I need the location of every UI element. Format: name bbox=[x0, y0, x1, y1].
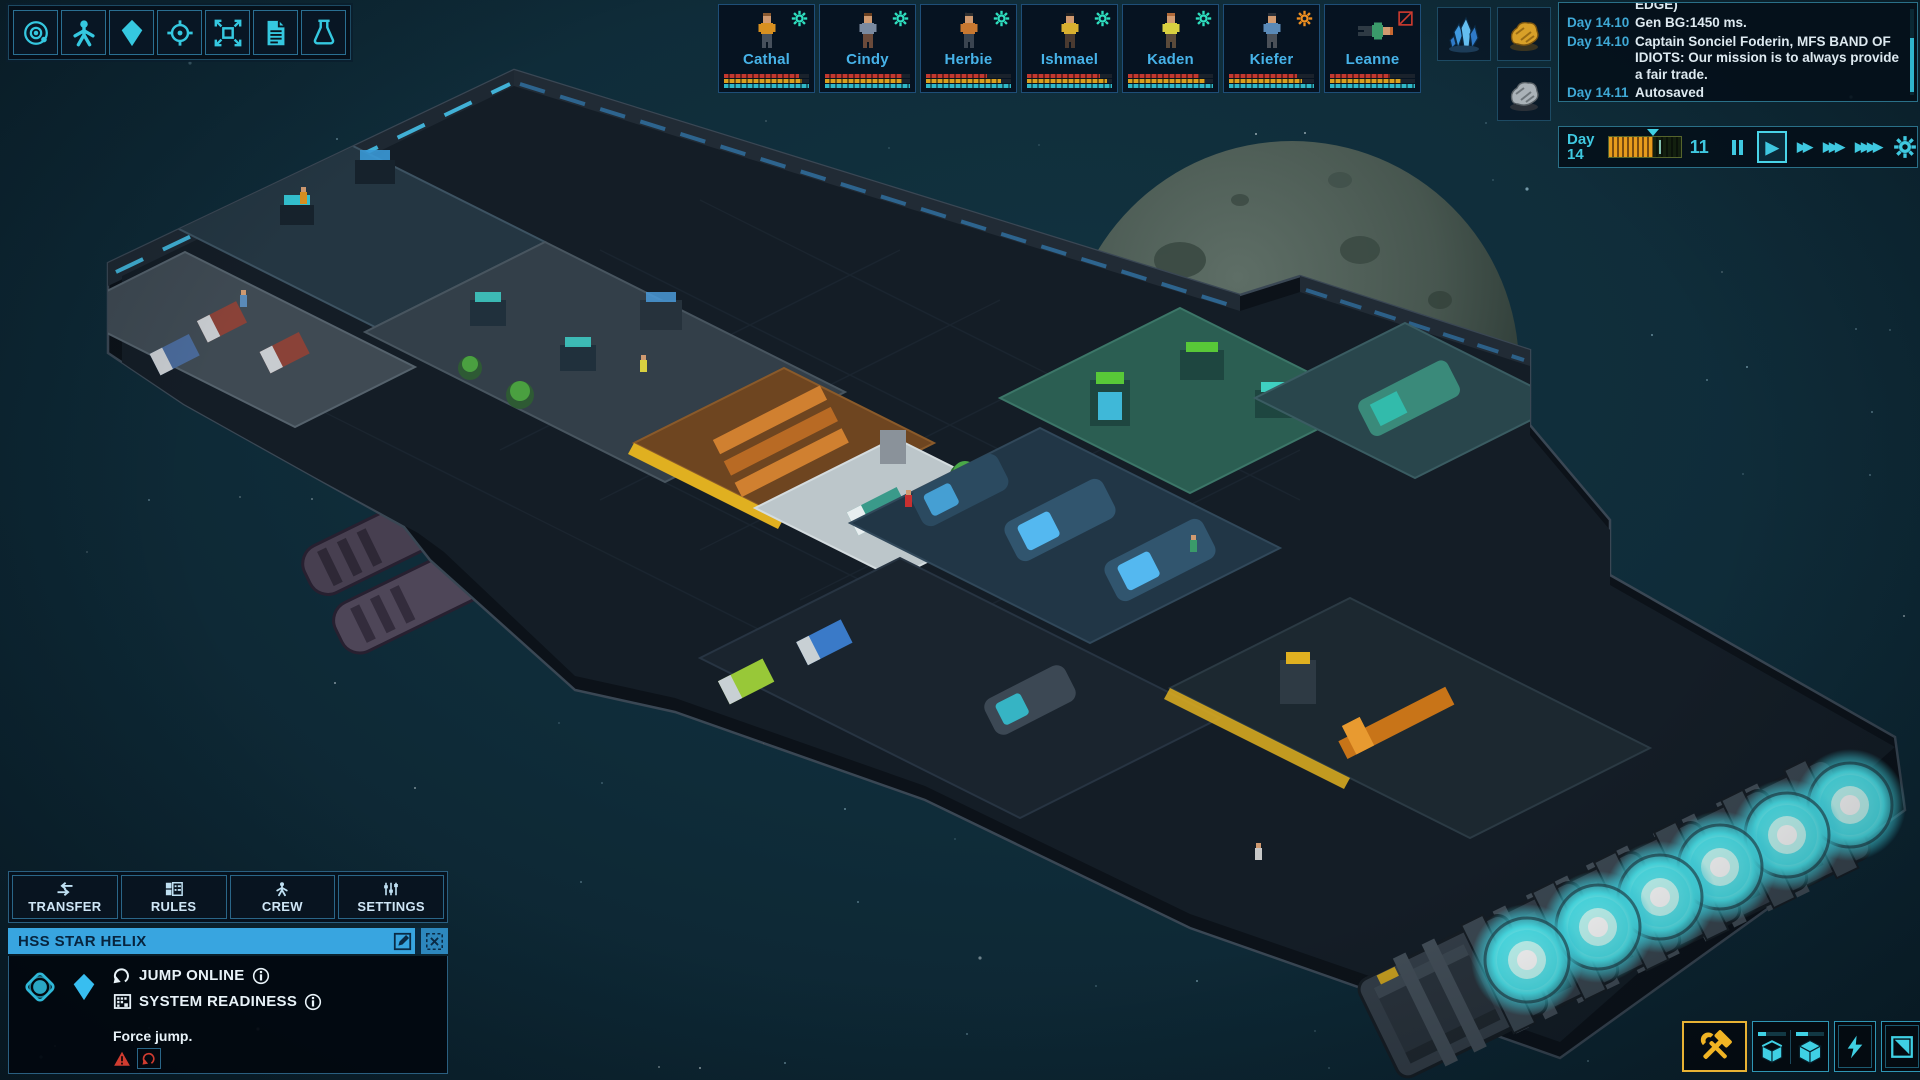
crew-name: Cathal bbox=[719, 51, 814, 68]
system-readiness-row[interactable]: SYSTEM READINESS bbox=[113, 992, 322, 1011]
event-log-entry: Day 14.10Gen BG:1450 ms. bbox=[1567, 15, 1903, 31]
crew-card-cathal[interactable]: Cathal bbox=[718, 4, 815, 93]
reports-icon bbox=[261, 18, 291, 48]
resource-empty-slot bbox=[1437, 67, 1491, 121]
ship-tab-label: TRANSFER bbox=[28, 899, 101, 914]
ship-tab-transfer[interactable]: TRANSFER bbox=[12, 875, 118, 919]
time-settings-button[interactable] bbox=[1893, 135, 1917, 159]
crew-card-leanne[interactable]: Leanne bbox=[1324, 4, 1421, 93]
reports-button[interactable] bbox=[253, 10, 298, 55]
jump-online-label: JUMP ONLINE bbox=[139, 967, 245, 984]
main-toolbar bbox=[8, 5, 351, 60]
hammer-wrench-icon bbox=[1696, 1028, 1734, 1066]
ship-icon bbox=[117, 18, 147, 48]
event-log-scroll-thumb[interactable] bbox=[1910, 38, 1914, 91]
game-stage: Cathal Cindy Herbie Ishmael Kaden bbox=[0, 0, 1920, 1080]
info-icon[interactable] bbox=[252, 967, 270, 985]
ship-title-bar: HSS STAR HELIX bbox=[8, 928, 448, 954]
pencil-icon bbox=[393, 932, 412, 951]
expand-view-button[interactable] bbox=[205, 10, 250, 55]
ship-name: HSS STAR HELIX bbox=[8, 933, 389, 950]
ship-kite-icon bbox=[69, 970, 99, 1004]
crew-portrait-sprite bbox=[1350, 11, 1396, 51]
gear-icon bbox=[1893, 135, 1917, 159]
dashed-x-icon bbox=[425, 932, 444, 951]
gold-ore-resource-slot[interactable] bbox=[1497, 7, 1551, 61]
system-view-icon bbox=[21, 18, 51, 48]
storage-open-box-button[interactable] bbox=[1753, 1030, 1790, 1064]
crew-card-ishmael[interactable]: Ishmael bbox=[1021, 4, 1118, 93]
event-log-entry: Day 14.10Captain Sonciel Foderin, MFS BA… bbox=[1567, 34, 1903, 83]
crew-status-bars bbox=[1229, 73, 1314, 88]
speed-3x-button[interactable]: ▶▶▶ bbox=[1823, 139, 1845, 155]
crew-status-bars bbox=[1330, 73, 1415, 88]
jump-arrow-icon bbox=[113, 966, 132, 985]
ship-tab-rules[interactable]: RULES bbox=[121, 875, 227, 919]
storage-fill-bar bbox=[1758, 1032, 1786, 1036]
rock-ore-resource-slot[interactable] bbox=[1497, 67, 1551, 121]
event-log-entry: EDGE) bbox=[1567, 2, 1903, 13]
force-jump-label: Force jump. bbox=[113, 1028, 192, 1044]
hour-number: 11 bbox=[1690, 137, 1716, 158]
open-box-icon bbox=[1759, 1038, 1785, 1064]
deselect-ship-button[interactable] bbox=[421, 928, 448, 954]
crew-card-kaden[interactable]: Kaden bbox=[1122, 4, 1219, 93]
crew-card-cindy[interactable]: Cindy bbox=[819, 4, 916, 93]
crew-card-herbie[interactable]: Herbie bbox=[920, 4, 1017, 93]
crew-status-bars bbox=[1027, 73, 1112, 88]
crew-portrait-sprite bbox=[744, 11, 790, 51]
crew-button[interactable] bbox=[61, 10, 106, 55]
crew-gear-icon[interactable] bbox=[993, 10, 1010, 27]
speed-4x-button[interactable]: ▶▶▶▶ bbox=[1855, 139, 1883, 155]
resource-grid bbox=[1437, 7, 1551, 121]
crew-name: Kaden bbox=[1123, 51, 1218, 68]
play-button[interactable]: ▶ bbox=[1757, 131, 1787, 163]
cube-icon bbox=[1797, 1038, 1823, 1064]
crystal-resource-icon bbox=[1444, 14, 1484, 54]
build-tools-button[interactable] bbox=[1682, 1021, 1747, 1072]
system-view-button[interactable] bbox=[13, 10, 58, 55]
event-log-text: Autosaved bbox=[1635, 85, 1903, 101]
target-button[interactable] bbox=[157, 10, 202, 55]
crew-status-bars bbox=[926, 73, 1011, 88]
day-indicator: Day 14 bbox=[1567, 132, 1600, 162]
ship-tab-settings[interactable]: SETTINGS bbox=[338, 875, 444, 919]
crew-name: Cindy bbox=[820, 51, 915, 68]
event-log-text: Gen BG:1450 ms. bbox=[1635, 15, 1903, 31]
lightning-icon bbox=[1842, 1034, 1868, 1060]
settings-icon bbox=[381, 881, 401, 897]
ship-panel-body: JUMP ONLINE SYSTEM READINESS Force jump. bbox=[8, 956, 448, 1074]
ship-button[interactable] bbox=[109, 10, 154, 55]
ship-select-diamond-icon bbox=[21, 968, 59, 1006]
ship-panel-tabs: TRANSFERRULESCREWSETTINGS bbox=[8, 871, 448, 923]
speed-2x-button[interactable]: ▶▶ bbox=[1797, 139, 1813, 155]
research-icon bbox=[309, 18, 339, 48]
ship-tab-label: SETTINGS bbox=[357, 899, 424, 914]
crew-gear-icon[interactable] bbox=[791, 10, 808, 27]
research-button[interactable] bbox=[301, 10, 346, 55]
floor-plan-button[interactable] bbox=[1881, 1021, 1920, 1072]
system-readiness-label: SYSTEM READINESS bbox=[139, 993, 297, 1010]
crew-name: Ishmael bbox=[1022, 51, 1117, 68]
power-overlay-button[interactable] bbox=[1834, 1021, 1876, 1072]
event-log-day bbox=[1567, 2, 1631, 13]
crew-name: Kiefer bbox=[1224, 51, 1319, 68]
day-progress-bar bbox=[1608, 136, 1682, 158]
rock-ore-resource-icon bbox=[1504, 74, 1544, 114]
event-log-entry: Day 14.11Autosaved bbox=[1567, 85, 1903, 101]
crew-gear-icon[interactable] bbox=[1296, 10, 1313, 27]
target-icon bbox=[165, 18, 195, 48]
crew-status-bars bbox=[825, 73, 910, 88]
jump-arrow-icon bbox=[142, 1051, 157, 1066]
corner-plan-icon bbox=[1889, 1034, 1915, 1060]
day-progress-marker bbox=[1647, 129, 1659, 136]
info-icon[interactable] bbox=[304, 993, 322, 1011]
storage-cube-button[interactable] bbox=[1790, 1030, 1828, 1064]
event-log-scrollbar[interactable] bbox=[1910, 9, 1914, 95]
crew-status-bars bbox=[1128, 73, 1213, 88]
day-label: Day bbox=[1567, 132, 1600, 147]
storage-fill-bar bbox=[1796, 1032, 1824, 1036]
ship-tab-crew[interactable]: CREW bbox=[230, 875, 336, 919]
crew-name: Herbie bbox=[921, 51, 1016, 68]
crew-card-kiefer[interactable]: Kiefer bbox=[1223, 4, 1320, 93]
storage-buttons bbox=[1752, 1021, 1829, 1072]
event-log[interactable]: EDGE)Day 14.10Gen BG:1450 ms.Day 14.10Ca… bbox=[1558, 2, 1918, 102]
force-jump-button[interactable] bbox=[137, 1048, 161, 1069]
event-log-text: Captain Sonciel Foderin, MFS BAND OF IDI… bbox=[1635, 34, 1903, 83]
day-number: 14 bbox=[1567, 147, 1600, 162]
build-toolbar bbox=[1682, 1021, 1920, 1072]
crew-gear-icon[interactable] bbox=[1195, 10, 1212, 27]
gold-ore-resource-icon bbox=[1504, 14, 1544, 54]
warning-icon bbox=[113, 1050, 131, 1068]
ship-tab-label: RULES bbox=[151, 899, 197, 914]
system-grid-icon bbox=[113, 992, 132, 1011]
crew-gear-icon[interactable] bbox=[1094, 10, 1111, 27]
pause-button[interactable] bbox=[1725, 133, 1749, 161]
day-progress-tick bbox=[1659, 140, 1661, 154]
day-progress-rest bbox=[1653, 137, 1680, 157]
day-progress-fill bbox=[1609, 137, 1653, 157]
crew-portrait-sprite bbox=[1047, 11, 1093, 51]
crew-portrait-sprite bbox=[1148, 11, 1194, 51]
ship-tab-label: CREW bbox=[262, 899, 303, 914]
crew-portrait-sprite bbox=[1249, 11, 1295, 51]
rules-icon bbox=[164, 881, 184, 897]
crew-icon bbox=[69, 18, 99, 48]
jump-online-row[interactable]: JUMP ONLINE bbox=[113, 966, 270, 985]
expand-view-icon bbox=[213, 18, 243, 48]
crew-forbidden-icon[interactable] bbox=[1397, 10, 1414, 27]
crew-status-bars bbox=[724, 73, 809, 88]
rename-ship-button[interactable] bbox=[389, 931, 415, 951]
event-log-day: Day 14.10 bbox=[1567, 34, 1631, 83]
crew-gear-icon[interactable] bbox=[892, 10, 909, 27]
transfer-icon bbox=[55, 881, 75, 897]
event-log-entries: EDGE)Day 14.10Gen BG:1450 ms.Day 14.10Ca… bbox=[1567, 2, 1903, 102]
event-log-text: EDGE) bbox=[1635, 2, 1903, 13]
time-control-panel: Day 14 11 ▶ ▶▶ ▶▶▶ ▶▶▶▶ bbox=[1558, 126, 1918, 168]
crew-bar: Cathal Cindy Herbie Ishmael Kaden bbox=[718, 4, 1421, 93]
event-log-day: Day 14.11 bbox=[1567, 85, 1631, 101]
crew-portrait-sprite bbox=[946, 11, 992, 51]
crew-portrait-sprite bbox=[845, 11, 891, 51]
crew-name: Leanne bbox=[1325, 51, 1420, 68]
crystal-resource-slot[interactable] bbox=[1437, 7, 1491, 61]
event-log-day: Day 14.10 bbox=[1567, 15, 1631, 31]
crew-icon bbox=[272, 881, 292, 897]
